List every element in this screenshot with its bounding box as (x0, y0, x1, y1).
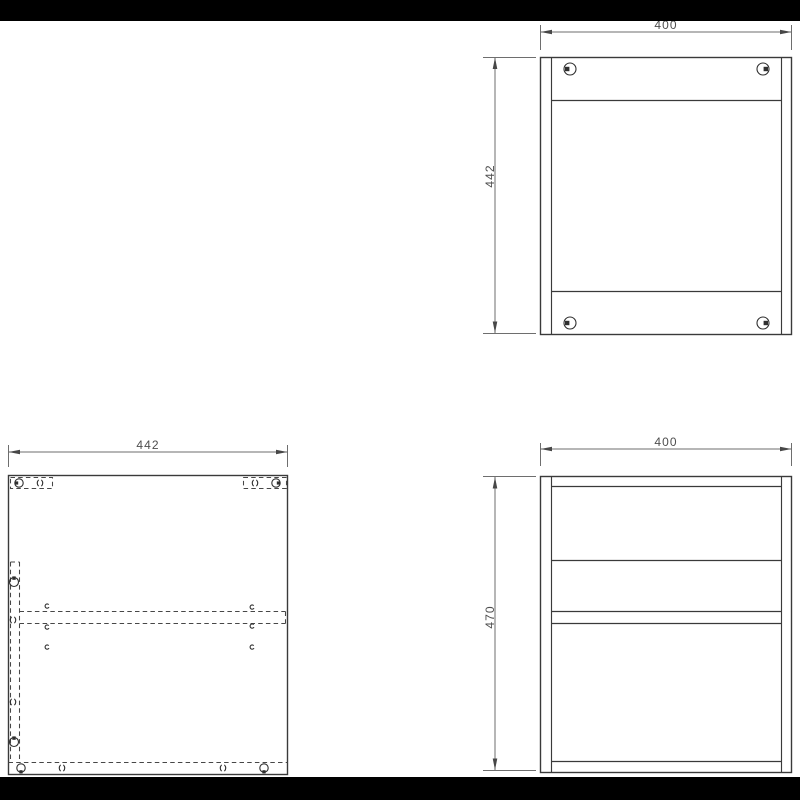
letterbox-bottom (0, 777, 800, 800)
arrowhead (780, 447, 792, 452)
cam-lock-icon (15, 479, 23, 487)
cam-lock-icon (260, 764, 268, 774)
arrowhead (9, 450, 21, 455)
dowel-mark-icon (250, 624, 254, 628)
front-view (483, 443, 792, 773)
arrowhead (541, 447, 553, 452)
arrowhead (493, 322, 498, 334)
letterbox-top (0, 0, 800, 21)
dim-label-side-width: 442 (126, 439, 170, 451)
dowel-mark-icon (250, 645, 254, 649)
drill-hole-icon (220, 765, 226, 771)
drill-hole-icon (37, 480, 43, 486)
dowel-mark-icon (45, 625, 49, 629)
image-viewer: 400 442 442 400 470 (0, 0, 800, 800)
outer-edge (9, 476, 288, 775)
arrowhead (780, 30, 792, 35)
arrowhead (493, 58, 498, 70)
cam-lock-icon (272, 479, 280, 487)
drill-hole-icon (252, 480, 258, 486)
drill-hole-icon (59, 765, 65, 771)
arrowhead (493, 759, 498, 771)
arrowhead (493, 477, 498, 489)
arrowhead (276, 450, 288, 455)
cam-lock-icon (564, 317, 576, 329)
arrowhead (541, 30, 553, 35)
dim-label-back-height: 442 (484, 154, 496, 198)
drill-hole-icon (10, 699, 16, 705)
outer-edge (541, 477, 792, 773)
dim-label-front-width: 400 (644, 436, 688, 448)
back-panel-view (483, 25, 792, 335)
dowel-mark-icon (45, 604, 49, 608)
cam-lock-icon (17, 764, 25, 774)
cam-lock-icon (564, 63, 576, 75)
dowel-mark-icon (250, 605, 254, 609)
cam-lock-icon (757, 317, 769, 329)
drill-hole-icon (10, 617, 16, 623)
side-panel-view (9, 445, 288, 775)
dim-label-front-height: 470 (484, 595, 496, 639)
cam-lock-icon (757, 63, 769, 75)
outer-edge (541, 58, 792, 335)
dowel-mark-icon (45, 645, 49, 649)
technical-drawing (0, 0, 800, 800)
